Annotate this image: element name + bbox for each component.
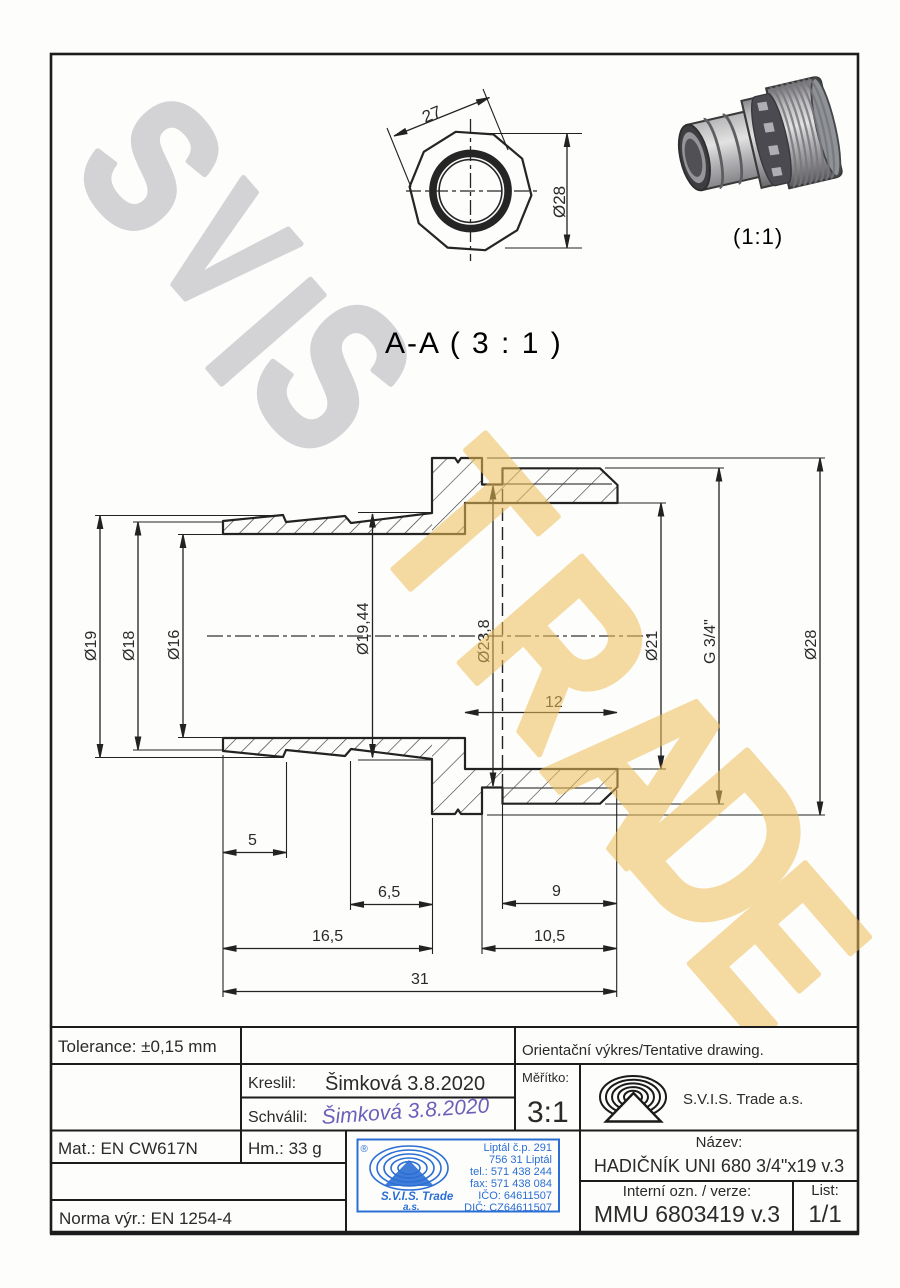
svg-text:Hm.: 33 g: Hm.: 33 g (248, 1139, 322, 1158)
svg-text:fax: 571 438 084: fax: 571 438 084 (470, 1178, 552, 1190)
svg-text:Norma výr.: EN 1254-4: Norma výr.: EN 1254-4 (59, 1209, 232, 1228)
svg-text:Ø16: Ø16 (166, 630, 183, 660)
svg-text:DIČ: CZ64611507: DIČ: CZ64611507 (464, 1201, 552, 1214)
svg-text:Liptál č.p. 291: Liptál č.p. 291 (484, 1142, 553, 1154)
svg-text:Měřítko:: Měřítko: (522, 1070, 569, 1085)
svg-text:Šimková 3.8.2020: Šimková 3.8.2020 (325, 1072, 485, 1095)
svg-text:Ø28: Ø28 (803, 630, 820, 660)
svg-text:756 31 Liptál: 756 31 Liptál (489, 1154, 552, 1166)
svg-text:Ø28: Ø28 (550, 186, 569, 218)
svg-text:S.V.I.S. Trade a.s.: S.V.I.S. Trade a.s. (683, 1091, 803, 1108)
svg-text:16,5: 16,5 (312, 928, 343, 945)
svg-text:MMU 6803419 v.3: MMU 6803419 v.3 (594, 1201, 780, 1227)
svg-text:Orientační výkres/Tentative dr: Orientační výkres/Tentative drawing. (522, 1042, 764, 1059)
svg-text:®: ® (845, 924, 864, 954)
svg-text:9: 9 (552, 883, 561, 900)
svg-text:A-A ( 3 : 1 ): A-A ( 3 : 1 ) (385, 327, 563, 360)
svg-text:10,5: 10,5 (534, 928, 565, 945)
svg-text:®: ® (361, 1144, 369, 1155)
svg-text:Mat.: EN CW617N: Mat.: EN CW617N (58, 1139, 198, 1158)
svg-text:IČO: 64611507: IČO: 64611507 (478, 1189, 552, 1202)
svg-text:List:: List: (811, 1182, 839, 1199)
svg-text:Tolerance: ±0,15 mm: Tolerance: ±0,15 mm (58, 1037, 217, 1056)
svg-text:6,5: 6,5 (378, 884, 400, 901)
svg-text:31: 31 (411, 971, 429, 988)
svg-text:(1:1): (1:1) (733, 224, 783, 249)
svg-text:27: 27 (419, 102, 444, 127)
svg-text:Interní ozn. / verze:: Interní ozn. / verze: (623, 1183, 751, 1200)
svg-text:Ø19: Ø19 (83, 631, 100, 661)
svg-text:Schválil:: Schválil: (248, 1109, 308, 1126)
svg-text:Kreslil:: Kreslil: (248, 1075, 296, 1092)
svg-text:3:1: 3:1 (527, 1096, 569, 1129)
svg-text:Ø18: Ø18 (121, 631, 138, 661)
svg-text:1/1: 1/1 (808, 1201, 841, 1228)
svg-text:5: 5 (248, 832, 257, 849)
svg-text:tel.: 571 438 244: tel.: 571 438 244 (470, 1166, 552, 1178)
svg-text:Šimková 3.8.2020: Šimková 3.8.2020 (321, 1094, 491, 1129)
svg-text:HADIČNÍK UNI 680 3/4"x19 v.3: HADIČNÍK UNI 680 3/4"x19 v.3 (594, 1155, 844, 1176)
svg-text:a.s.: a.s. (403, 1202, 420, 1213)
svg-text:Název:: Název: (696, 1134, 743, 1151)
